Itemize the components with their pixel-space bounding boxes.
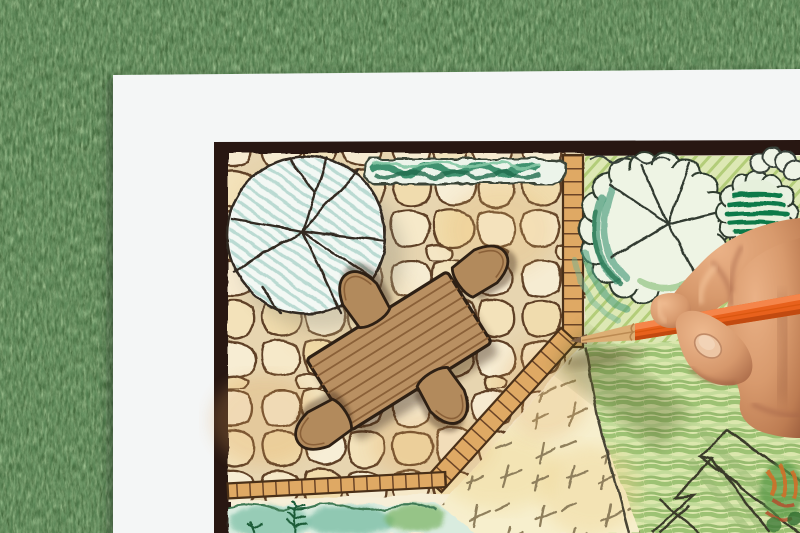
bed-green-blob — [385, 505, 445, 531]
photo-garden-plan-sketch — [0, 0, 800, 533]
scene-canvas — [0, 0, 800, 533]
bed-teal-blob2 — [305, 506, 395, 533]
hedge-strip — [363, 159, 565, 183]
edging-vertical — [563, 155, 583, 347]
